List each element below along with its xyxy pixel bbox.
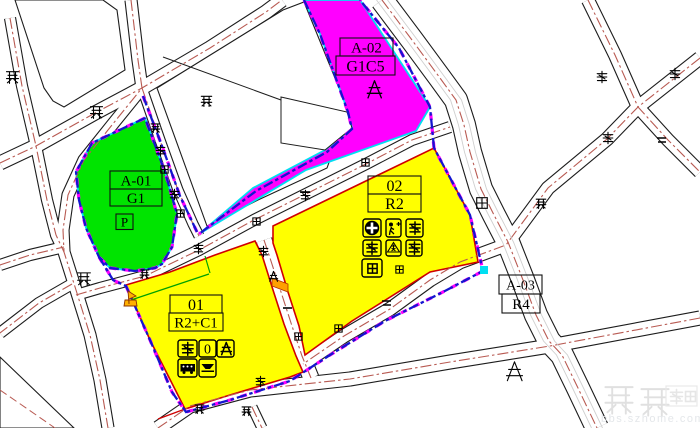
svg-text:bbs.szhome.com: bbs.szhome.com — [601, 413, 700, 425]
svg-text:01: 01 — [188, 297, 204, 314]
svg-text:A-02: A-02 — [351, 40, 382, 56]
svg-text:G1C5: G1C5 — [346, 58, 384, 75]
svg-text:G1: G1 — [127, 191, 145, 207]
svg-text:R2+C1: R2+C1 — [174, 315, 217, 331]
svg-text:02: 02 — [387, 178, 403, 195]
svg-text:A-01: A-01 — [121, 173, 152, 189]
svg-text:R2: R2 — [385, 196, 404, 213]
svg-text:A-03: A-03 — [506, 279, 535, 294]
svg-text:P: P — [121, 214, 128, 229]
svg-text:R4: R4 — [512, 297, 530, 313]
svg-text:0: 0 — [204, 343, 211, 358]
